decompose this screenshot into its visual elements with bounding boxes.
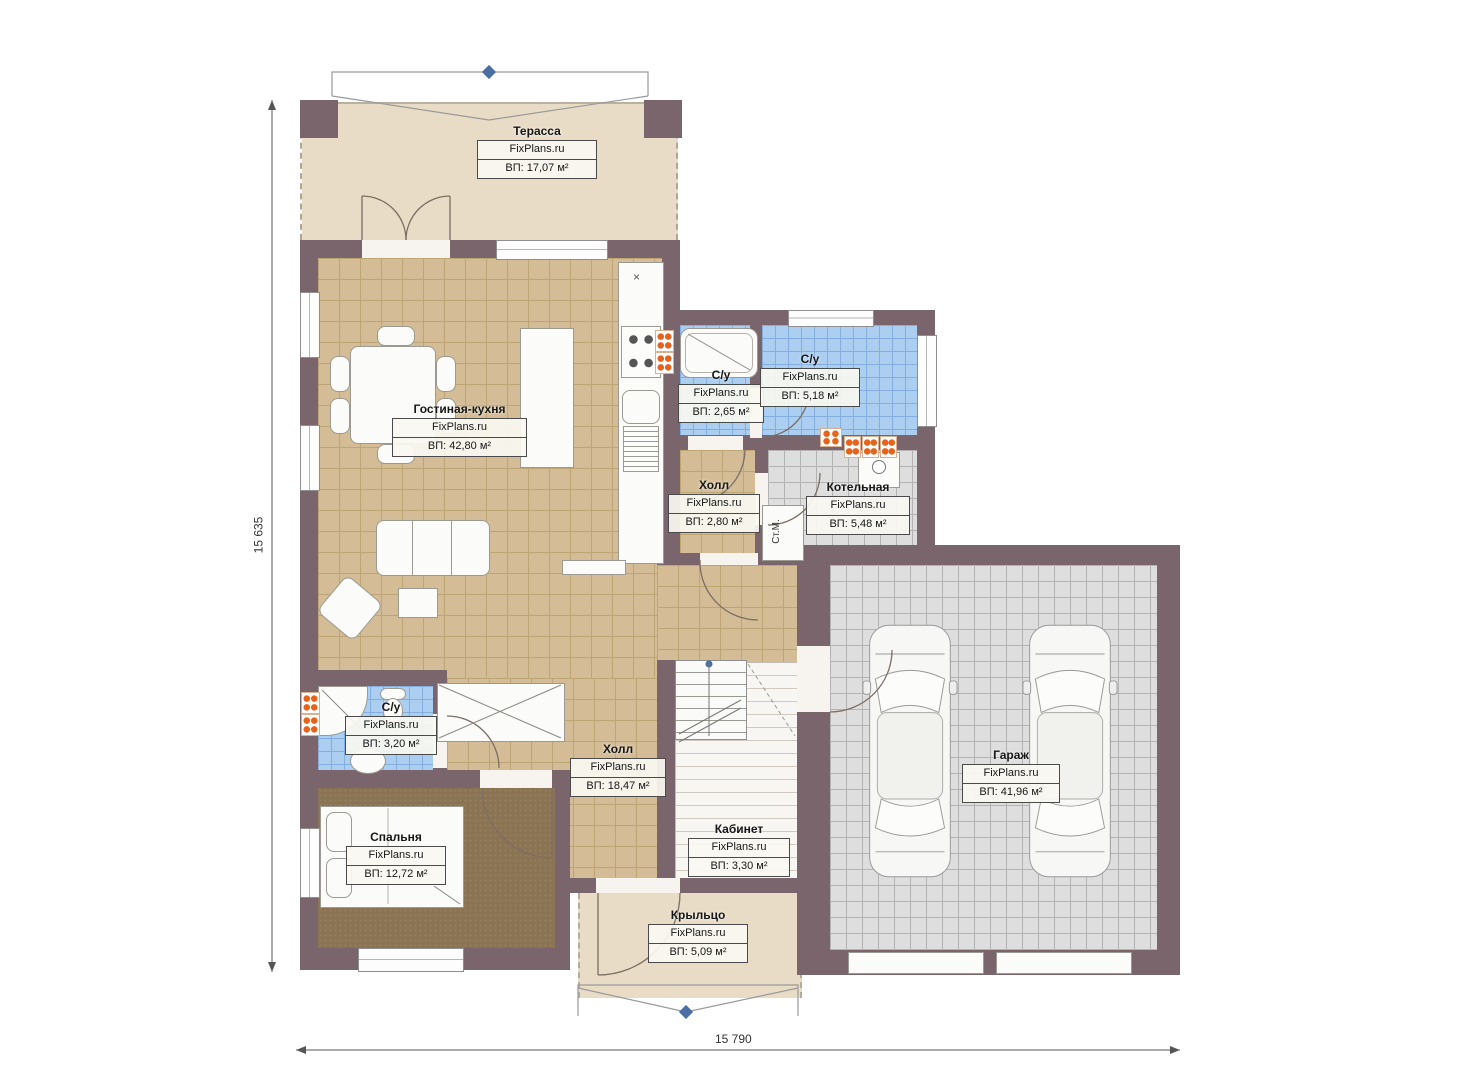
bedroom-window-left [300,828,320,898]
kitchen-island [520,328,574,468]
room-info-box: FixPlans.ru ВП: 41,96 м² [962,764,1060,803]
room-name: Кабинет [688,822,790,836]
brand-text: FixPlans.ru [807,497,909,515]
dining-chair [330,356,350,392]
radiator-icon [655,330,674,352]
room-area: ВП: 3,20 м² [346,735,436,754]
brand-text: FixPlans.ru [346,717,436,735]
brand-text: FixPlans.ru [478,141,596,159]
wc265-door-opening [688,436,743,450]
radiator-icon [880,436,897,458]
living-window-2 [300,425,320,491]
hall-corridor-floor [657,565,797,662]
fridge-icon [623,426,659,472]
room-info-box: FixPlans.ru ВП: 17,07 м² [477,140,597,179]
room-area: ВП: 2,65 м² [679,403,763,422]
wall-terrace-pillar-left [300,100,338,138]
wall-garage-left [797,565,830,950]
wall-bedroom-right [555,770,570,970]
room-label-wc-3-20: С/у FixPlans.ru ВП: 3,20 м² [345,700,437,755]
radiator-icon [844,436,861,458]
room-label-wc-5-18: С/у FixPlans.ru ВП: 5,18 м² [760,352,860,407]
room-name: Холл [570,742,666,756]
floor-plan: Терасса FixPlans.ru ВП: 17,07 м² Гостина… [0,0,1474,1080]
dining-chair [436,356,456,392]
room-label-living-kitchen: Гостиная-кухня FixPlans.ru ВП: 42,80 м² [392,402,527,457]
entry-door-opening [596,878,680,893]
sofa [376,520,490,576]
wall-garage-top [797,545,1180,565]
room-name: Холл [668,478,760,492]
room-info-box: FixPlans.ru ВП: 18,47 м² [570,758,666,797]
room-name: Спальня [346,830,446,844]
room-name: Гостиная-кухня [392,402,527,416]
annexhall-door-opening [700,553,758,565]
annex-window-top [788,310,874,327]
kitchen-sink [622,390,660,424]
dining-chair [377,326,415,346]
room-label-wc-2-65: С/у FixPlans.ru ВП: 2,65 м² [678,368,764,423]
brand-text: FixPlans.ru [963,765,1059,783]
staircase [675,660,747,740]
wardrobe [437,683,565,742]
bedroom-door-opening [480,770,552,788]
brand-text: FixPlans.ru [669,495,759,513]
room-info-box: FixPlans.ru ВП: 5,48 м² [806,496,910,535]
coffee-table [398,588,438,618]
room-name: Терасса [477,124,597,138]
wall-garage-right [1157,545,1180,975]
room-label-boiler: Котельная FixPlans.ru ВП: 5,48 м² [806,480,910,535]
room-name: С/у [760,352,860,366]
room-area: ВП: 42,80 м² [393,437,526,456]
brand-text: FixPlans.ru [571,759,665,777]
boiler-dial [872,460,886,474]
room-info-box: FixPlans.ru ВП: 2,65 м² [678,384,764,423]
garage-gate-left [848,952,984,974]
radiator-icon [655,352,674,374]
room-name: Крыльцо [648,908,748,922]
washing-machine-label: Ст.М. [771,519,782,544]
room-area: ВП: 5,48 м² [807,515,909,534]
room-label-garage: Гараж FixPlans.ru ВП: 41,96 м² [962,748,1060,803]
room-label-terrace: Терасса FixPlans.ru ВП: 17,07 м² [477,124,597,179]
room-info-box: FixPlans.ru ВП: 5,09 м² [648,924,748,963]
tv-bench [562,560,626,575]
room-info-box: FixPlans.ru ВП: 2,80 м² [668,494,760,533]
room-area: ВП: 5,09 м² [649,943,747,962]
room-name: С/у [345,700,437,714]
room-area: ВП: 12,72 м² [347,865,445,884]
room-label-bedroom: Спальня FixPlans.ru ВП: 12,72 м² [346,830,446,885]
room-area: ВП: 3,30 м² [689,857,789,876]
room-area: ВП: 5,18 м² [761,387,859,406]
living-window-1 [300,292,320,358]
brand-text: FixPlans.ru [761,369,859,387]
brand-text: FixPlans.ru [689,839,789,857]
room-info-box: FixPlans.ru ВП: 5,18 м² [760,368,860,407]
brand-text: FixPlans.ru [679,385,763,403]
radiator-icon [862,436,879,458]
room-label-porch: Крыльцо FixPlans.ru ВП: 5,09 м² [648,908,748,963]
radiator-icon [301,714,320,736]
wall-living-top [300,240,680,258]
room-info-box: FixPlans.ru ВП: 12,72 м² [346,846,446,885]
room-info-box: FixPlans.ru ВП: 3,30 м² [688,838,790,877]
brand-text: FixPlans.ru [393,419,526,437]
washing-machine [762,505,804,561]
bathtub-inner [685,333,753,373]
wall-wc320-top [300,670,447,686]
radiator-icon [301,692,320,714]
room-area: ВП: 18,47 м² [571,777,665,796]
room-info-box: FixPlans.ru ВП: 3,20 м² [345,716,437,755]
room-label-hall-2-80: Холл FixPlans.ru ВП: 2,80 м² [668,478,760,533]
room-info-box: FixPlans.ru ВП: 42,80 м² [392,418,527,457]
dimension-left: 15 635 [251,517,265,554]
room-label-hall-18-47: Холл FixPlans.ru ВП: 18,47 м² [570,742,666,797]
brand-text: FixPlans.ru [347,847,445,865]
room-name: Гараж [962,748,1060,762]
car-top-view [862,612,958,890]
kitchen-x-mark: × [633,270,640,284]
wc-5-18-window [917,335,937,427]
dining-chair [330,398,350,434]
room-name: Котельная [806,480,910,494]
kitchen-window [496,240,608,260]
room-name: С/у [678,368,764,382]
room-area: ВП: 17,07 м² [478,159,596,178]
bedroom-window-bottom [358,948,464,972]
room-area: ВП: 41,96 м² [963,783,1059,802]
garage-door-opening [797,646,830,712]
garage-gate-right [996,952,1132,974]
room-area: ВП: 2,80 м² [669,513,759,532]
radiator-icon [820,428,842,447]
brand-text: FixPlans.ru [649,925,747,943]
terrace-door-opening [362,240,450,258]
room-label-office: Кабинет FixPlans.ru ВП: 3,30 м² [688,822,790,877]
dimension-bottom: 15 790 [715,1032,752,1046]
wall-terrace-pillar-right [644,100,682,138]
